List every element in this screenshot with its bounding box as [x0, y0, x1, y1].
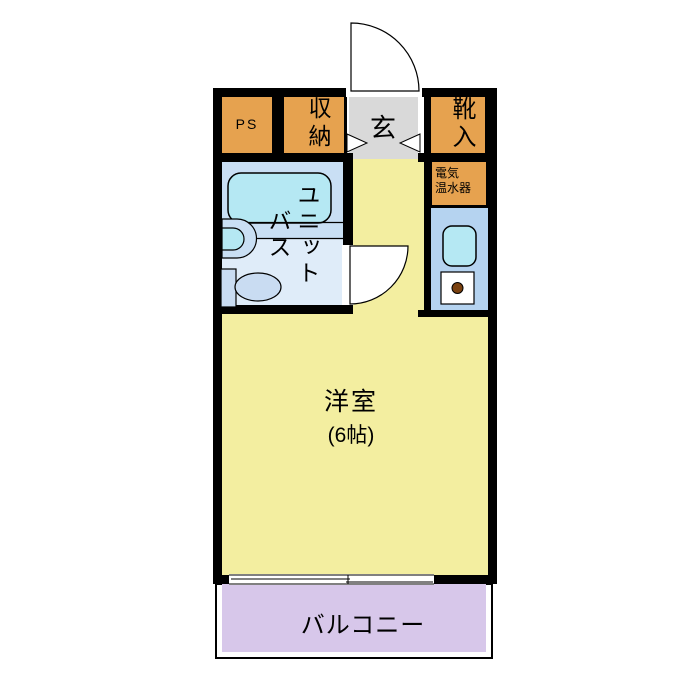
entrance-doorway-gap — [346, 88, 422, 97]
wall-right — [488, 88, 497, 584]
entrance-door — [351, 23, 419, 91]
wall-kitchen-bottom — [418, 310, 497, 317]
kitchen-floor — [431, 208, 488, 311]
wall-bath-bottom — [213, 305, 353, 314]
closet-box — [281, 93, 347, 156]
floorplan: PS 収納 玄 靴入 電気 温水器 ユニット バス 洋室 (6帖) バルコニー — [0, 0, 700, 700]
wall-right-column-left — [424, 88, 431, 317]
wall-bath-right — [343, 153, 353, 313]
water-heater-box — [429, 158, 489, 208]
wall-ps-closet-divider — [272, 88, 283, 162]
shoe-cabinet-box — [424, 93, 488, 156]
entrance-hall-floor — [349, 93, 418, 159]
ps-box — [219, 93, 276, 156]
wall-left — [213, 88, 222, 584]
balcony-floor — [222, 584, 486, 652]
unit-bath-floor-lower — [222, 238, 344, 305]
